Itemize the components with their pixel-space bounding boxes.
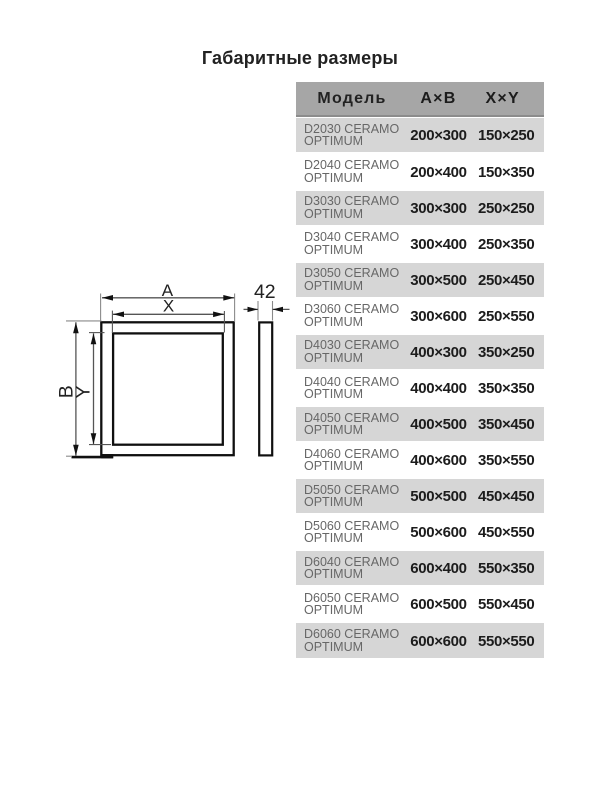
svg-text:X: X [163,297,174,316]
svg-text:Y: Y [73,385,95,398]
svg-text:42: 42 [254,281,276,303]
